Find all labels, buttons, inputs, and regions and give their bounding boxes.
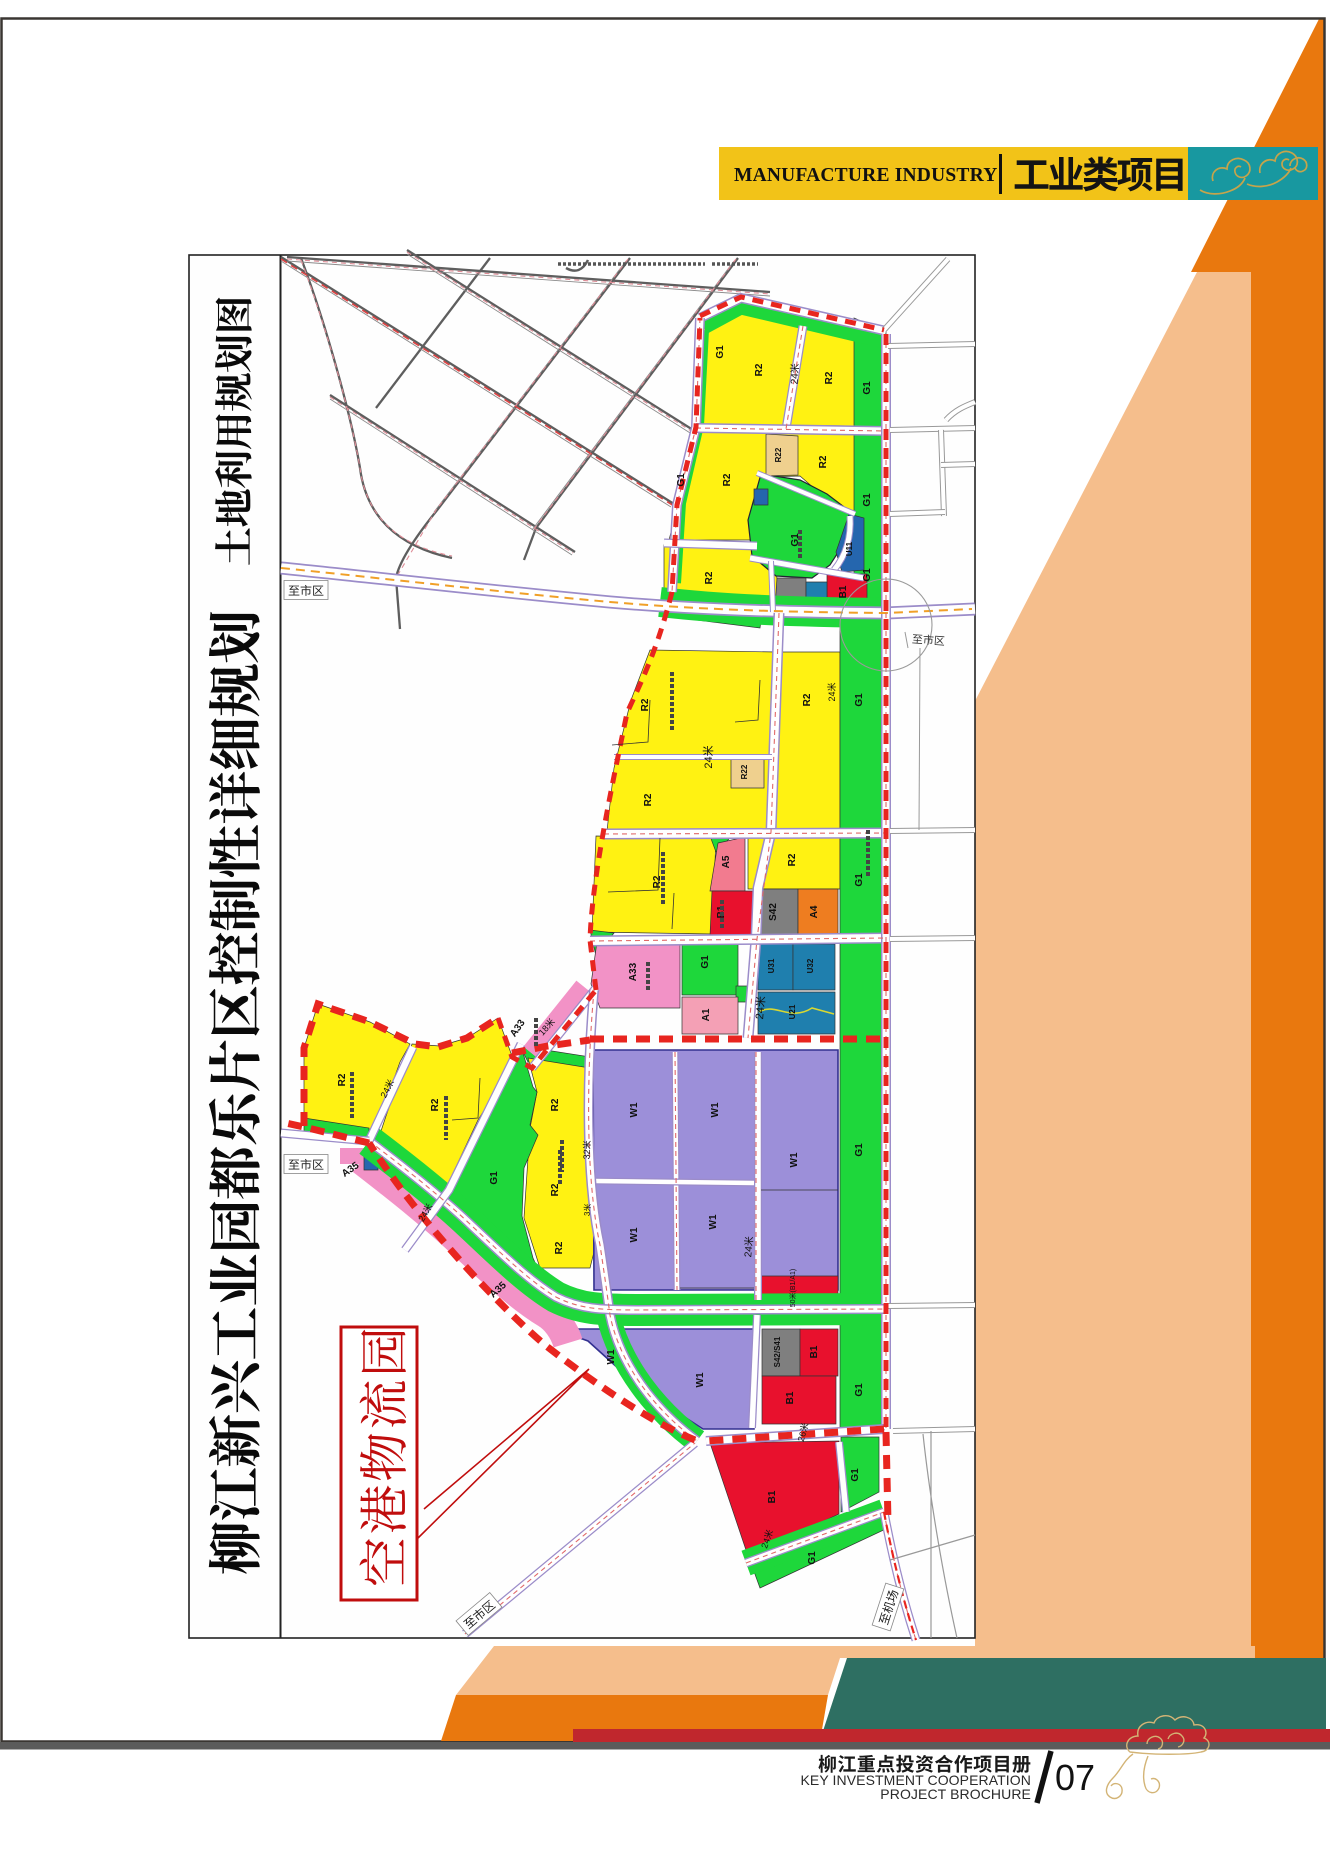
- svg-text:G1: G1: [489, 1171, 500, 1185]
- svg-text:B1: B1: [809, 1345, 820, 1358]
- svg-text:G1: G1: [854, 1383, 865, 1397]
- svg-text:G1: G1: [854, 693, 865, 707]
- svg-text:U11: U11: [845, 541, 854, 556]
- svg-text:R2: R2: [554, 1241, 565, 1254]
- svg-text:G1: G1: [850, 1468, 861, 1482]
- svg-text:R22: R22: [774, 447, 783, 462]
- svg-text:PROJECT BROCHURE: PROJECT BROCHURE: [880, 1786, 1031, 1802]
- svg-text:G1: G1: [807, 1551, 818, 1565]
- svg-text:MANUFACTURE INDUSTRY: MANUFACTURE INDUSTRY: [734, 165, 998, 186]
- svg-text:B1: B1: [767, 1490, 778, 1503]
- svg-text:R2: R2: [550, 1098, 561, 1111]
- svg-text:W1: W1: [695, 1372, 706, 1387]
- svg-text:W1: W1: [629, 1102, 640, 1117]
- svg-text:R2: R2: [754, 363, 765, 376]
- svg-text:G1: G1: [676, 473, 687, 487]
- svg-text:32米: 32米: [581, 1140, 593, 1160]
- svg-text:G1: G1: [700, 955, 711, 969]
- svg-text:R2: R2: [337, 1073, 348, 1086]
- svg-text:50米(B1/A1): 50米(B1/A1): [788, 1269, 797, 1308]
- svg-text:24米: 24米: [753, 996, 768, 1020]
- svg-text:3米: 3米: [581, 1203, 592, 1216]
- svg-text:A1: A1: [701, 1008, 712, 1021]
- svg-text:24米: 24米: [787, 363, 801, 385]
- svg-text:B1: B1: [838, 585, 849, 598]
- svg-text:G1: G1: [715, 345, 726, 359]
- svg-text:W1: W1: [789, 1152, 800, 1167]
- svg-text:G1: G1: [862, 568, 873, 582]
- svg-text:W1: W1: [710, 1102, 721, 1117]
- svg-text:R2: R2: [550, 1183, 561, 1196]
- svg-text:R2: R2: [818, 455, 829, 468]
- svg-text:G1: G1: [862, 493, 873, 507]
- svg-text:G1: G1: [854, 1143, 865, 1157]
- svg-text:G1: G1: [854, 873, 865, 887]
- svg-text:U32: U32: [806, 958, 815, 973]
- svg-text:B1: B1: [785, 1391, 796, 1404]
- svg-text:R2: R2: [824, 371, 835, 384]
- svg-text:24米: 24米: [826, 682, 837, 701]
- svg-text:R2: R2: [430, 1098, 441, 1111]
- svg-text:S42/S41: S42/S41: [773, 1336, 782, 1367]
- svg-text:A33: A33: [628, 962, 639, 981]
- svg-text:R2: R2: [802, 693, 813, 706]
- svg-text:R2: R2: [722, 473, 733, 486]
- svg-text:A5: A5: [721, 855, 732, 868]
- svg-text:W1: W1: [708, 1214, 719, 1229]
- svg-text:U31: U31: [767, 958, 776, 973]
- svg-text:A4: A4: [809, 905, 820, 918]
- svg-text:R22: R22: [740, 764, 749, 779]
- svg-text:07: 07: [1055, 1757, 1095, 1798]
- svg-text:R2: R2: [787, 853, 798, 866]
- svg-text:S42: S42: [768, 903, 779, 921]
- svg-text:W1: W1: [629, 1227, 640, 1242]
- svg-text:R2: R2: [643, 793, 654, 806]
- svg-text:R2: R2: [704, 571, 715, 584]
- svg-text:24米: 24米: [702, 745, 715, 768]
- svg-text:G1: G1: [862, 381, 873, 395]
- svg-text:W1: W1: [606, 1349, 617, 1364]
- svg-text:U21: U21: [788, 1004, 797, 1019]
